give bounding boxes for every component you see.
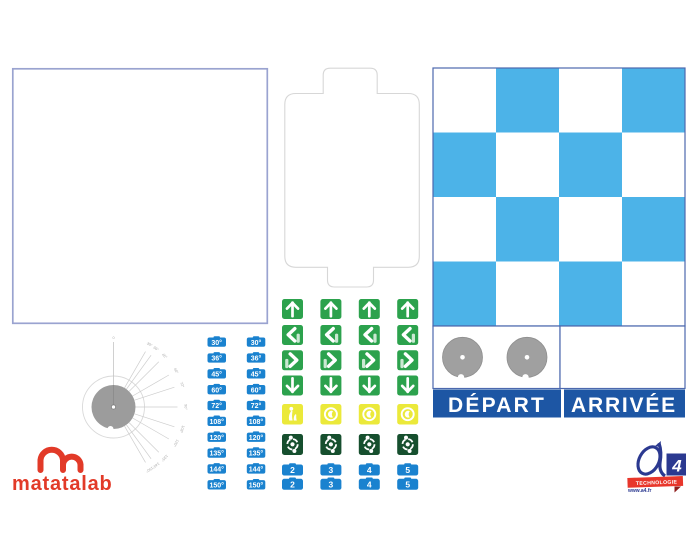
svg-text:120°: 120° [249,434,264,442]
svg-text:36°: 36° [211,355,222,363]
svg-text:2: 2 [290,465,295,475]
svg-text:135°: 135° [209,450,224,458]
svg-text:3: 3 [329,480,334,490]
svg-text:135°: 135° [249,450,264,458]
svg-text:4: 4 [671,457,682,476]
svg-text:120°: 120° [209,434,224,442]
svg-text:30°: 30° [211,339,222,347]
svg-text:4: 4 [367,480,372,490]
svg-text:45°: 45° [251,371,262,379]
svg-text:72°: 72° [211,402,222,410]
svg-text:144°: 144° [209,466,224,474]
svg-text:ARRIVÉE: ARRIVÉE [571,394,677,417]
svg-text:36°: 36° [251,355,262,363]
svg-text:45°: 45° [211,371,222,379]
svg-text:60°: 60° [251,386,262,394]
svg-text:3: 3 [329,465,334,475]
svg-text:60°: 60° [211,386,222,394]
svg-text:DÉPART: DÉPART [448,394,546,417]
svg-text:150°: 150° [249,481,264,489]
svg-text:30°: 30° [251,339,262,347]
svg-text:108°: 108° [209,418,224,426]
svg-text:matatalab: matatalab [12,473,113,495]
svg-text:0: 0 [112,336,114,340]
svg-text:5: 5 [405,465,410,475]
svg-text:72°: 72° [251,402,262,410]
svg-text:90°: 90° [184,404,188,410]
svg-text:4: 4 [367,465,372,475]
svg-text:144°: 144° [249,466,264,474]
svg-text:108°: 108° [249,418,264,426]
svg-text:www.a4.fr: www.a4.fr [627,488,651,494]
svg-text:2: 2 [290,480,295,490]
svg-text:5: 5 [405,480,410,490]
svg-text:150°: 150° [209,481,224,489]
